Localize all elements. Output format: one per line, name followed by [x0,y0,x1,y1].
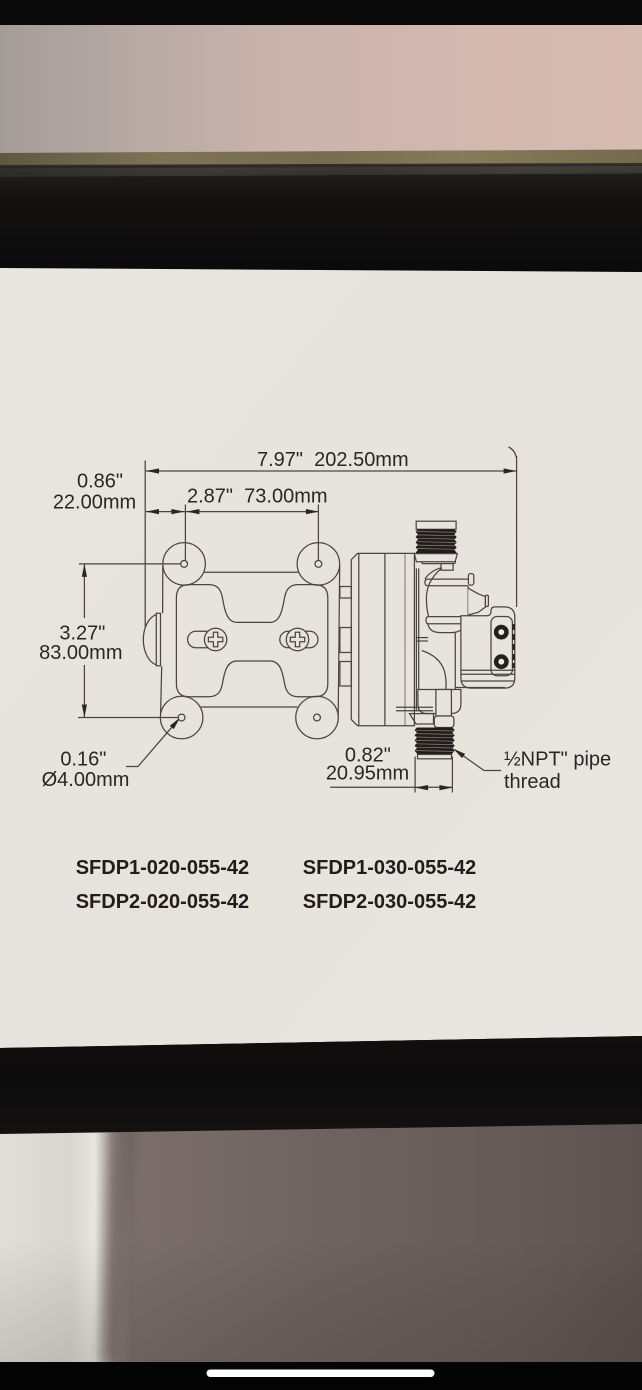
svg-text:½NPT" pipe: ½NPT" pipe [504,749,611,771]
svg-text:83.00mm: 83.00mm [39,642,122,664]
svg-text:Ø4.00mm: Ø4.00mm [42,769,130,791]
svg-text:SFDP2-020-055-42: SFDP2-020-055-42 [76,891,249,913]
svg-text:22.00mm: 22.00mm [53,492,136,514]
svg-text:SFDP1-030-055-42: SFDP1-030-055-42 [303,857,476,879]
svg-text:2.87" 73.00mm: 2.87" 73.00mm [187,486,328,508]
svg-text:0.86": 0.86" [77,471,123,493]
svg-text:0.16": 0.16" [60,749,106,771]
svg-text:thread: thread [504,771,561,793]
svg-text:SFDP2-030-055-42: SFDP2-030-055-42 [303,891,476,913]
svg-text:20.95mm: 20.95mm [326,763,409,785]
svg-text:7.97" 202.50mm: 7.97" 202.50mm [257,449,409,471]
svg-text:SFDP1-020-055-42: SFDP1-020-055-42 [76,857,249,879]
